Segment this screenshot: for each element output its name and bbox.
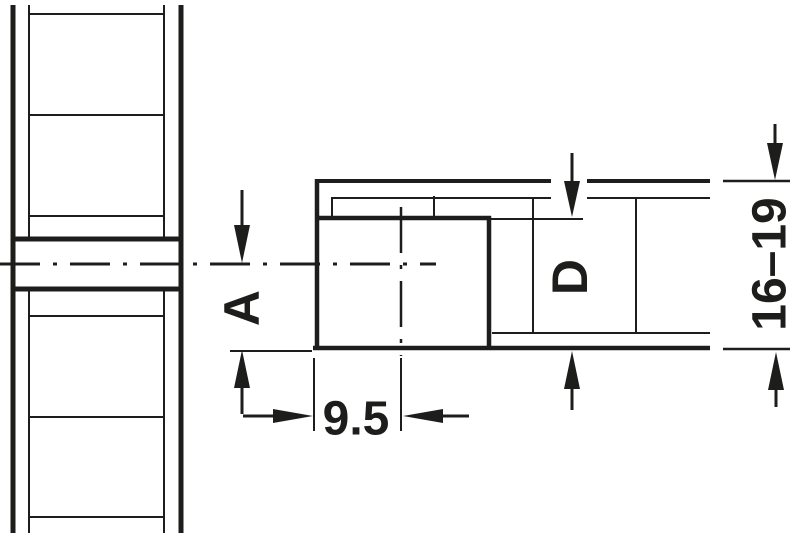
dim-d-down-arrow-icon — [564, 181, 580, 217]
dimension-d: D — [490, 153, 598, 410]
dimension-16-19: 16–19 — [723, 124, 797, 407]
dim-a-up-arrow-icon — [234, 350, 250, 388]
dim-a-down-arrow-icon — [234, 225, 250, 263]
dim-95-left-pointing-arrow-icon — [403, 409, 443, 423]
dim-1619-up-arrow-icon — [768, 352, 784, 390]
dim-d-up-arrow-icon — [564, 351, 580, 389]
vertical-panel-section — [11, 5, 183, 533]
connector-installation-drawing: A 9.5 D 16–19 — [0, 0, 800, 533]
dimension-9-5: 9.5 — [243, 358, 469, 446]
dim-d-label: D — [542, 259, 598, 295]
dimension-a: A — [214, 190, 312, 414]
dim-95-right-pointing-arrow-icon — [273, 409, 313, 423]
technical-drawing-canvas: A 9.5 D 16–19 — [0, 0, 800, 533]
dim-a-label: A — [214, 290, 270, 326]
dim-95-label: 9.5 — [323, 393, 390, 446]
dim-1619-down-arrow-icon — [767, 143, 783, 180]
dim-1619-label: 16–19 — [744, 197, 797, 330]
connector-housing — [315, 179, 491, 356]
